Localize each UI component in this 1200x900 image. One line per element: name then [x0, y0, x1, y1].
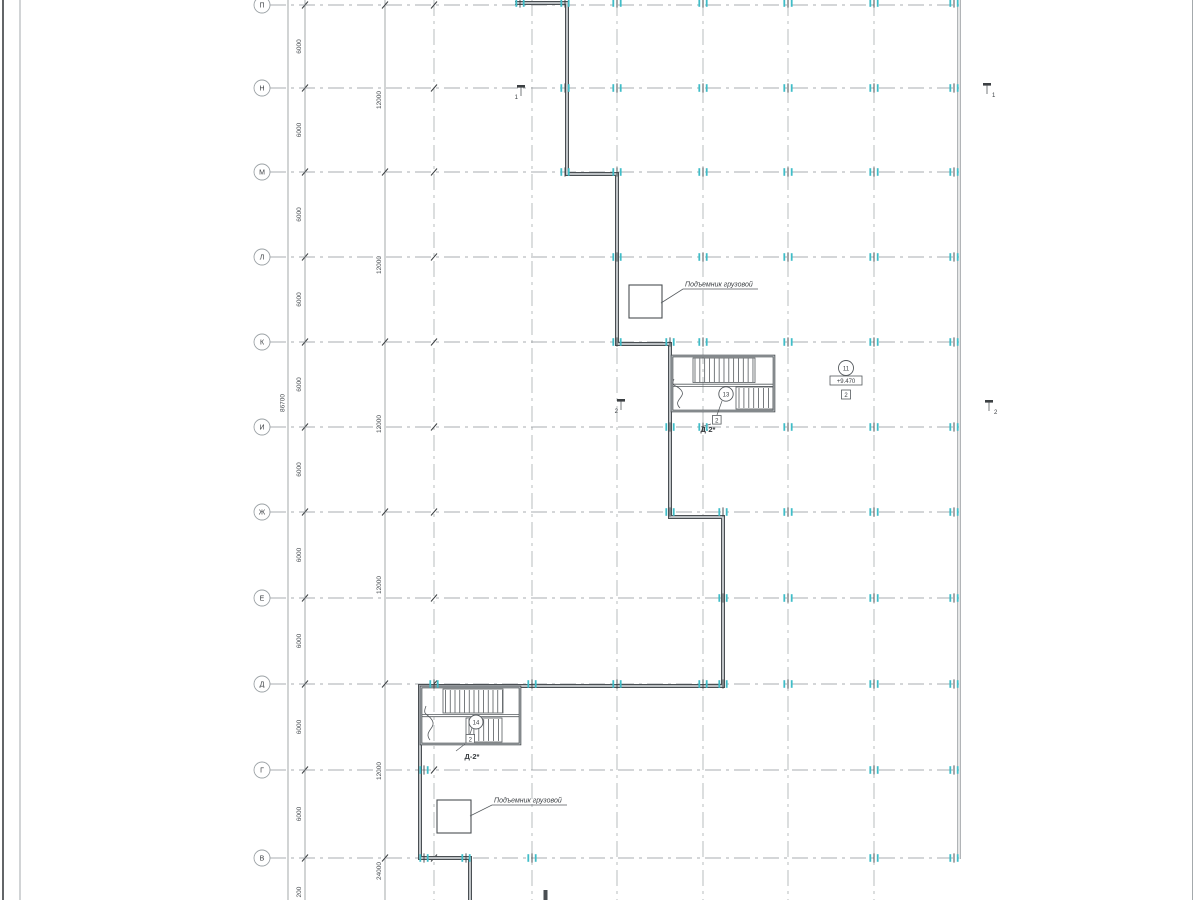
section-number: 1	[515, 95, 519, 101]
column-marker	[869, 337, 878, 346]
axis-label: М	[259, 169, 265, 176]
column-marker	[869, 422, 878, 431]
section-mark-1-right: 1	[983, 83, 996, 99]
column-marker	[698, 422, 707, 431]
axis-label: П	[259, 2, 264, 9]
column-marker	[665, 337, 674, 346]
column-marker	[698, 0, 707, 8]
column-marker	[783, 679, 792, 688]
column-marker	[949, 765, 958, 774]
axis-label: И	[259, 424, 264, 431]
column-marker	[698, 337, 707, 346]
column-marker	[783, 0, 792, 8]
column-marker	[869, 507, 878, 516]
axis-label: Е	[260, 595, 265, 602]
column-marker	[560, 83, 569, 92]
axis-label: Д	[260, 681, 265, 688]
column-marker	[869, 0, 878, 8]
column-marker	[869, 593, 878, 602]
lift-shaft-box	[437, 800, 471, 833]
axis-label: Л	[260, 254, 265, 261]
dim-value-6000: 6000	[296, 122, 303, 137]
column-marker-layer	[419, 0, 958, 863]
dimension-layer: 6000600060006000600060006000600060006000…	[280, 0, 438, 900]
lift-shaft-lower: Подъемник грузовой	[437, 797, 567, 834]
column-marker	[869, 83, 878, 92]
node-number: 11	[843, 366, 850, 372]
stair-treads	[695, 359, 753, 383]
sheet-frame	[3, 0, 1193, 900]
stair-direction-curve	[425, 706, 433, 740]
stair-treads	[446, 690, 503, 713]
column-marker	[949, 0, 958, 8]
dim-value-12000: 12000	[376, 415, 383, 433]
column-marker	[419, 853, 428, 862]
column-marker	[783, 422, 792, 431]
dim-value-6000: 6000	[296, 633, 303, 648]
column-marker	[560, 167, 569, 176]
dim-value-partial: 200	[296, 886, 303, 897]
dim-value-12000: 12000	[376, 256, 383, 274]
column-marker	[869, 765, 878, 774]
elevation-value: +9.470	[837, 379, 856, 385]
column-marker	[949, 507, 958, 516]
node-number: 14	[473, 720, 480, 726]
column-marker	[665, 507, 674, 516]
column-marker	[698, 679, 707, 688]
column-marker	[783, 507, 792, 516]
column-marker	[698, 83, 707, 92]
axis-layer: ПНМЛКИЖЕДГВ	[254, 0, 959, 866]
column-marker	[515, 0, 524, 8]
stair-lower: 14 2 Д-2*	[421, 687, 520, 761]
column-marker	[612, 83, 621, 92]
dim-value-6000: 6000	[296, 377, 303, 392]
column-marker	[461, 853, 470, 862]
column-marker	[949, 167, 958, 176]
dim-value-12000: 12000	[376, 576, 383, 594]
stair-type-label: Д-2*	[465, 752, 480, 761]
column-marker	[527, 679, 536, 688]
dim-value-total: 86700	[280, 394, 287, 412]
column-marker	[949, 337, 958, 346]
column-marker	[869, 853, 878, 862]
axis-label: Н	[259, 85, 264, 92]
column-marker	[949, 853, 958, 862]
axis-label: Ж	[259, 509, 266, 516]
column-marker	[698, 167, 707, 176]
axis-label: В	[260, 855, 265, 862]
dim-value-6000: 6000	[296, 547, 303, 562]
column-marker	[783, 83, 792, 92]
dim-value-6000: 6000	[296, 39, 303, 54]
section-number: 2	[615, 409, 619, 415]
column-marker	[612, 0, 621, 8]
section-mark-2-right: 2	[985, 400, 998, 416]
lift-shaft-box	[629, 285, 662, 318]
stair-upper: 13 2 Д-2*	[672, 356, 774, 434]
column-marker	[783, 337, 792, 346]
dim-value-12000: 12000	[376, 91, 383, 109]
lift-label: Подъемник грузовой	[494, 797, 562, 805]
wall-outline	[420, 3, 723, 900]
column-marker	[718, 507, 727, 516]
column-marker	[718, 593, 727, 602]
section-mark-2-left: 2	[615, 399, 625, 415]
column-marker	[869, 679, 878, 688]
column-marker	[783, 593, 792, 602]
floor-plan-canvas: 6000600060006000600060006000600060006000…	[0, 0, 1200, 900]
dim-value-12000: 24000	[376, 862, 383, 880]
node-number: 13	[723, 392, 730, 398]
column-marker	[698, 252, 707, 261]
section-number: 1	[992, 93, 996, 99]
drawing-sheet: 6000600060006000600060006000600060006000…	[0, 0, 1200, 900]
column-marker	[665, 422, 674, 431]
column-marker	[783, 167, 792, 176]
lift-label: Подъемник грузовой	[685, 281, 753, 289]
dim-value-6000: 6000	[296, 462, 303, 477]
column-marker	[869, 252, 878, 261]
column-marker	[429, 679, 438, 688]
column-marker	[612, 679, 621, 688]
grid-layer	[434, 0, 960, 900]
column-marker	[527, 853, 536, 862]
column-marker	[419, 765, 428, 774]
stair-treads	[739, 388, 768, 408]
section-number: 2	[994, 410, 998, 416]
column-marker	[949, 83, 958, 92]
level-annotation: 11 +9.470 2	[830, 361, 862, 400]
column-marker	[949, 422, 958, 431]
stair-direction-curve	[673, 379, 683, 408]
dim-value-6000: 6000	[296, 806, 303, 821]
column-marker	[949, 593, 958, 602]
column-marker	[949, 252, 958, 261]
column-marker	[612, 167, 621, 176]
section-mark-1-left: 1	[515, 85, 525, 101]
column-marker	[783, 252, 792, 261]
dim-value-6000: 6000	[296, 719, 303, 734]
column-marker	[718, 679, 727, 688]
leader-line	[661, 289, 758, 303]
column-marker	[612, 252, 621, 261]
lift-shaft-upper: Подъемник грузовой	[629, 281, 758, 319]
dim-value-6000: 6000	[296, 292, 303, 307]
column-marker	[949, 679, 958, 688]
column-marker	[869, 167, 878, 176]
column-marker	[612, 337, 621, 346]
leader-line	[470, 805, 567, 816]
dim-value-6000: 6000	[296, 207, 303, 222]
axis-label: Г	[260, 767, 264, 774]
dim-value-12000: 12000	[376, 762, 383, 780]
column-marker	[560, 0, 569, 8]
